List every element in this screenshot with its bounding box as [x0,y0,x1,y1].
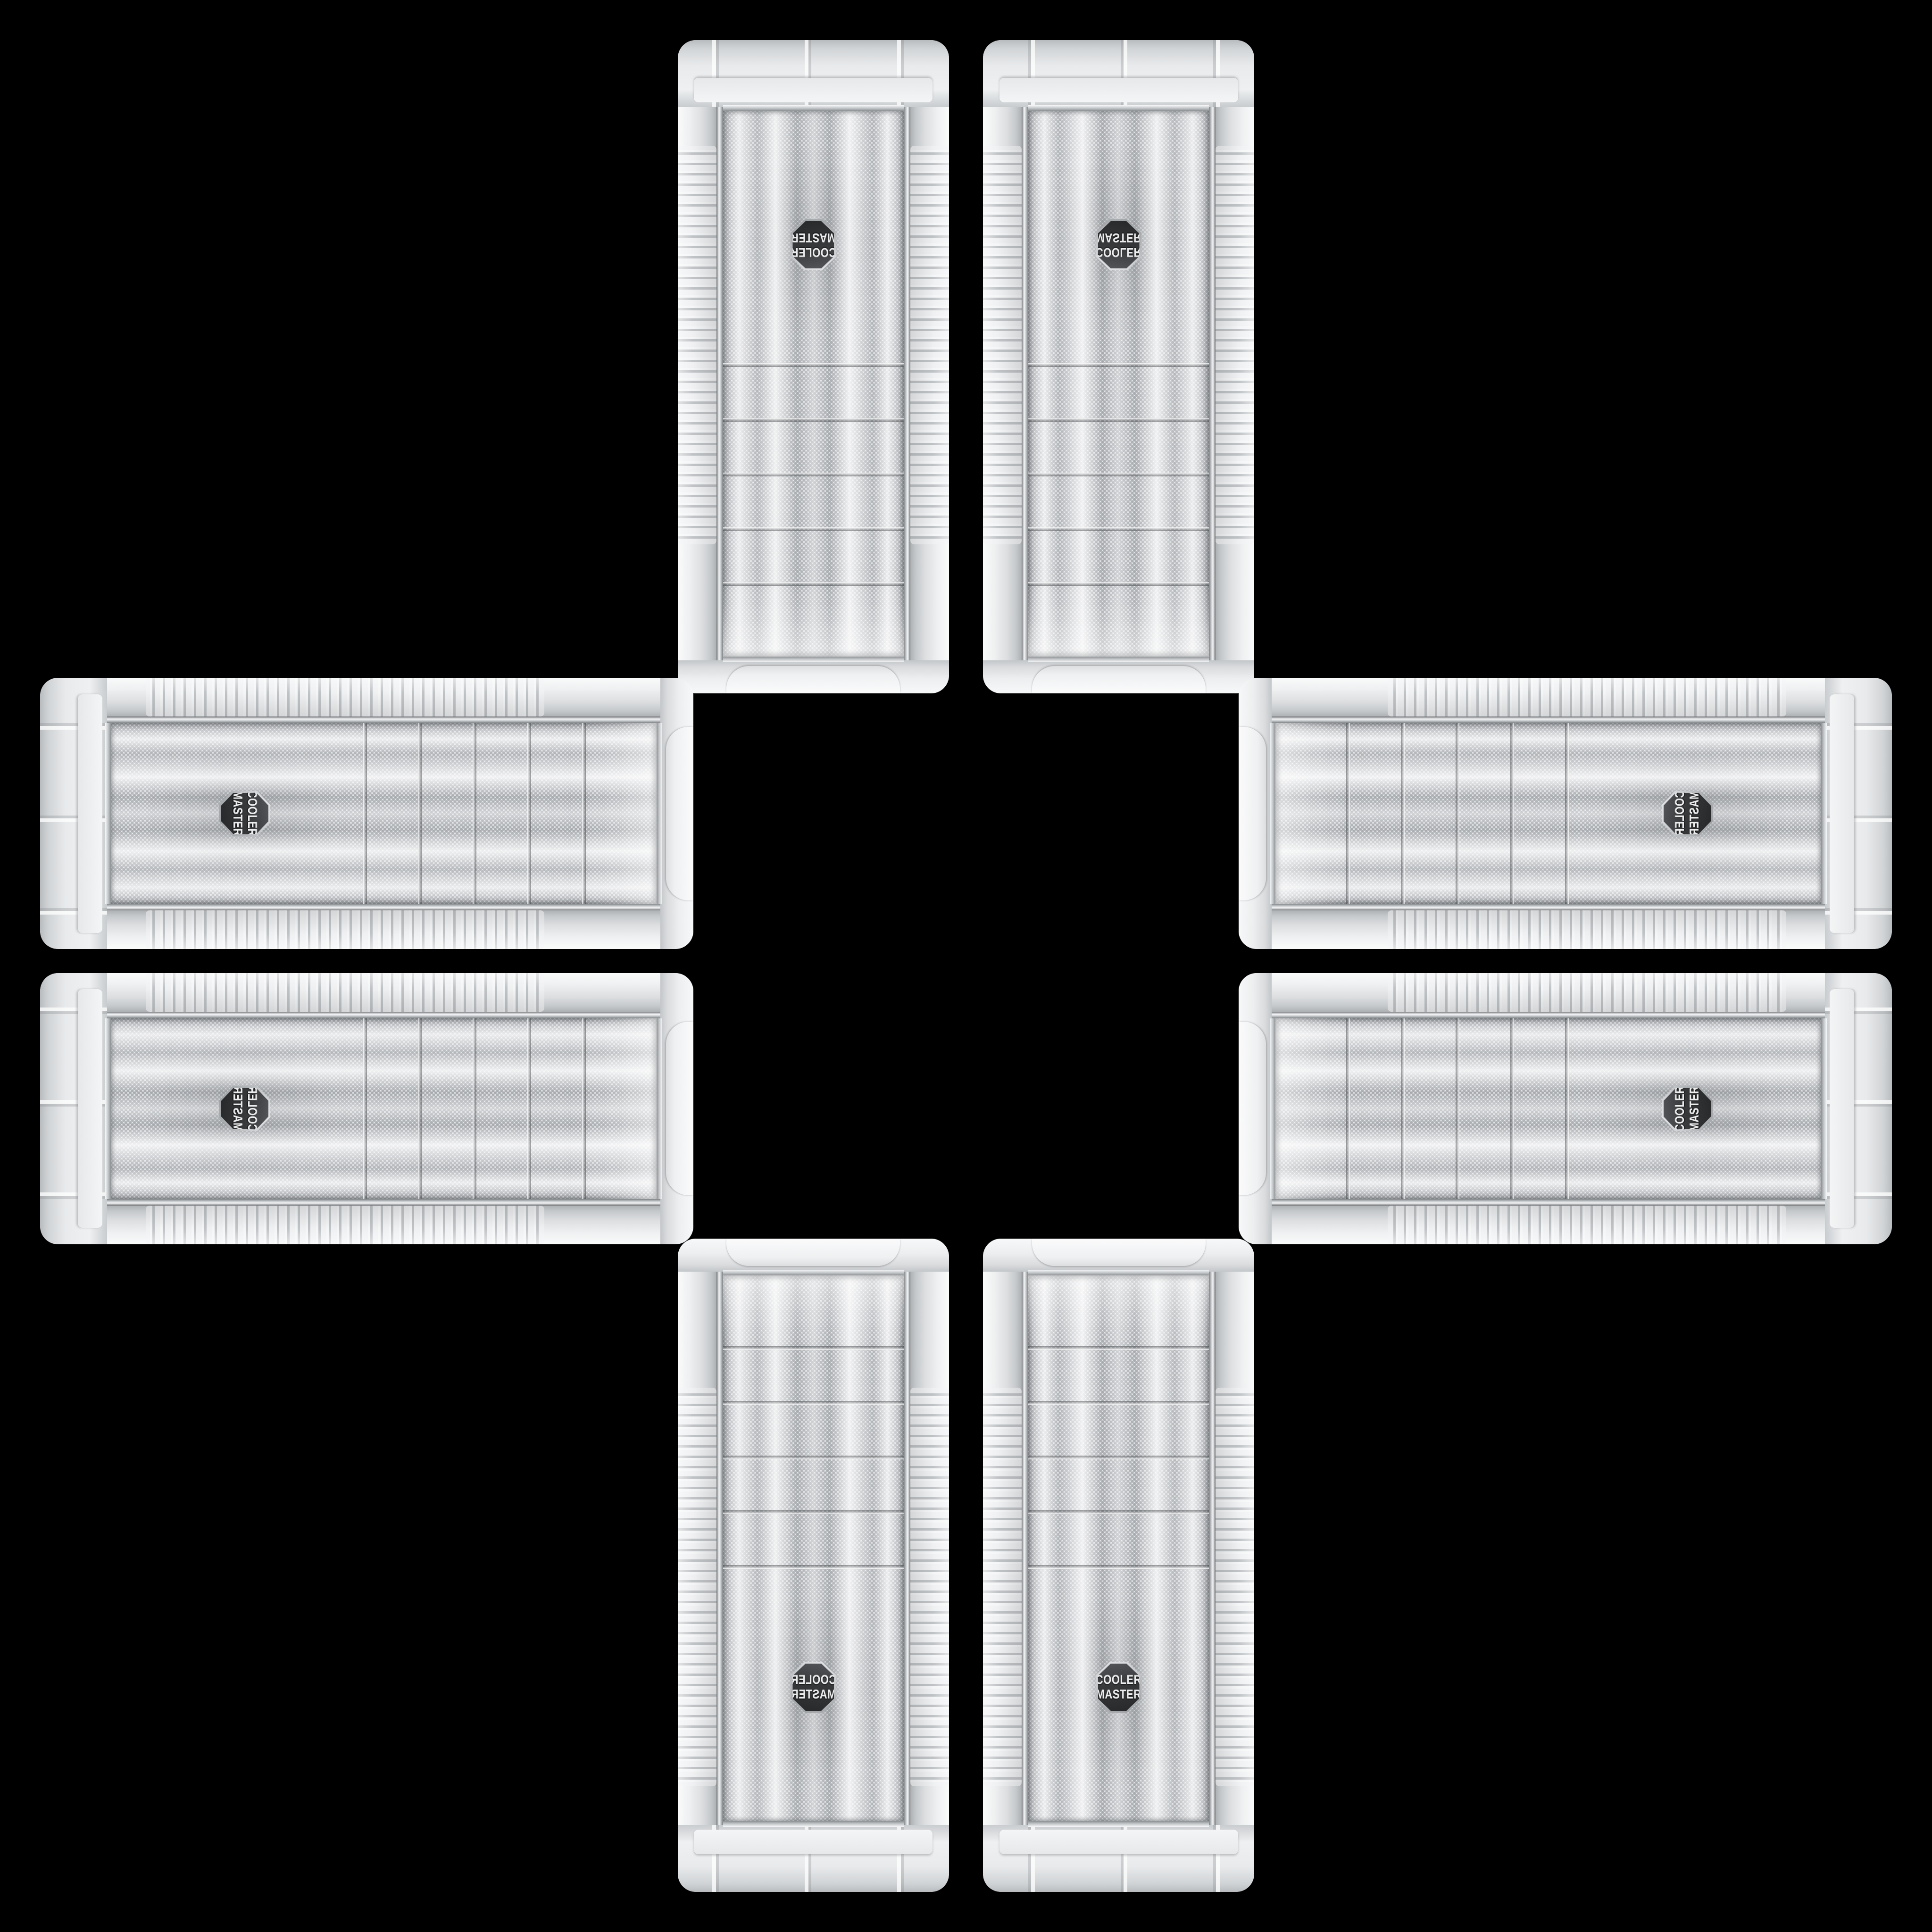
grip-ribs-left [1388,1206,1786,1244]
case-end-cap-base-side [678,40,949,107]
case-end-cap-base-side [1825,973,1892,1244]
chrome-trim-left [1270,1199,1827,1206]
cooler-master-badge-face: COOLER MASTER [1098,1664,1140,1711]
bay-cover-groove [418,723,422,904]
mesh-panel: COOLER MASTER [723,1275,904,1821]
bay-cover-groove [723,473,904,476]
bay-cover-groove [1565,723,1569,904]
cooler-master-badge: COOLER MASTER [219,1086,270,1132]
cooler-master-badge-face: COOLER MASTER [1098,221,1140,268]
case-front-bottom-right: COOLER MASTER [983,1239,1254,1892]
grip-ribs-left [910,146,949,544]
chrome-trim-bottom [723,1821,904,1827]
badge-text-line2: MASTER [1096,1688,1141,1701]
grip-ribs-right [678,146,716,544]
bay-cover-groove [1346,723,1350,904]
cooler-master-badge-face: COOLER MASTER [221,793,268,834]
bay-cover-groove [1401,723,1405,904]
badge-text-line1: COOLER [791,245,836,259]
mesh-panel: COOLER MASTER [111,1018,657,1199]
bay-cover-groove [1028,1565,1209,1569]
bay-cover-groove [418,1018,422,1199]
case-front-bottom-left: COOLER MASTER [678,1239,949,1892]
badge-text-line2: MASTER [1096,231,1141,244]
chrome-trim-left [105,1199,662,1206]
case-side-bezel-right [105,973,662,1012]
mesh-panel: COOLER MASTER [1275,1018,1821,1199]
case-front-left-bottom: COOLER MASTER [40,973,693,1244]
case-end-cap-base-side [1825,678,1892,949]
bay-cover-groove [723,1456,904,1459]
badge-text-line2: MASTER [1688,791,1701,836]
bay-cover-groove [723,418,904,422]
case-side-bezel-left [983,1270,1022,1827]
case-side-bezel-left [105,1206,662,1244]
mesh-hood [1028,1275,1209,1345]
grip-ribs-left [983,1388,1022,1786]
bay-cover-groove [1028,1456,1209,1459]
bay-cover-groove [1510,1018,1514,1199]
grip-ribs-left [910,1388,949,1786]
mesh-hood [723,1275,904,1345]
case-side-bezel-left [910,1270,949,1827]
bay-cover-groove [723,1565,904,1569]
cooler-master-badge-face: COOLER MASTER [221,1088,268,1130]
mesh-hood [1275,723,1345,904]
bay-cover-groove [1401,1018,1405,1199]
case-side-bezel-right [1216,105,1254,662]
case-end-cap-base-side [983,1825,1254,1892]
cooler-master-badge-face: COOLER MASTER [1664,793,1711,834]
grip-ribs-right [146,910,544,949]
bay-cover-groove [1028,363,1209,367]
bay-cover-groove [1510,723,1514,904]
mesh-panel: COOLER MASTER [723,111,904,657]
bay-cover-groove [1028,1510,1209,1514]
bay-cover-groove [1028,418,1209,422]
chrome-trim-top [723,1270,904,1275]
grip-ribs-right [678,1388,716,1786]
chrome-trim-right [1209,105,1216,662]
chrome-trim-top [1028,657,1209,662]
chrome-trim-bottom [1821,1018,1827,1199]
bay-cover-groove [582,1018,586,1199]
bay-cover-groove [723,1401,904,1405]
cooler-master-badge: COOLER MASTER [1096,1662,1141,1713]
chrome-trim-left [1022,105,1028,662]
case-end-cap-base-side [983,40,1254,107]
case-end-cap-bay-side [983,660,1254,693]
grip-ribs-left [1388,678,1786,716]
badge-text-line2: MASTER [791,1688,836,1701]
grip-ribs-right [146,973,544,1012]
mesh-hood [1028,587,1209,657]
badge-text-line1: COOLER [245,1086,259,1132]
case-end-cap-bay-side [660,678,693,949]
chrome-trim-left [1022,1270,1028,1827]
case-side-bezel-right [1270,910,1827,949]
cooler-master-badge: COOLER MASTER [219,791,270,836]
bay-cover-groove [1028,1401,1209,1405]
bay-cover-groove [363,723,367,904]
case-end-cap-bay-side [1239,973,1272,1244]
case-side-bezel-right [105,910,662,949]
bay-cover-groove [1028,1346,1209,1350]
chrome-trim-right [716,1270,723,1827]
case-side-bezel-left [1270,1206,1827,1244]
chrome-trim-right [1270,904,1827,910]
chrome-trim-left [105,716,662,723]
mesh-hood [723,587,904,657]
chrome-trim-bottom [723,105,904,111]
case-end-cap-bay-side [660,973,693,1244]
case-front-top-left: COOLER MASTER [678,40,949,693]
case-end-cap-base-side [678,1825,949,1892]
case-side-bezel-left [1270,678,1827,716]
bay-cover-groove [1346,1018,1350,1199]
case-front-right-top: COOLER MASTER [1239,678,1892,949]
mesh-hood [1275,1018,1345,1199]
cooler-master-badge-face: COOLER MASTER [793,1664,834,1711]
case-end-cap-bay-side [678,1239,949,1272]
case-side-bezel-left [105,678,662,716]
mesh-panel: COOLER MASTER [1028,1275,1209,1821]
case-side-bezel-left [910,105,949,662]
bay-cover-groove [527,1018,531,1199]
bay-cover-groove [363,1018,367,1199]
cooler-master-badge: COOLER MASTER [1662,1086,1713,1132]
badge-text-line1: COOLER [1096,245,1141,259]
grip-ribs-left [983,146,1022,544]
grip-ribs-right [1388,910,1786,949]
bay-cover-groove [723,527,904,531]
mesh-panel: COOLER MASTER [1028,111,1209,657]
bay-cover-groove [723,582,904,586]
case-side-bezel-right [1216,1270,1254,1827]
mesh-panel: COOLER MASTER [1275,723,1821,904]
bay-cover-groove [1028,582,1209,586]
case-front-top-right: COOLER MASTER [983,40,1254,693]
bay-cover-groove [527,723,531,904]
chrome-trim-top [1028,1270,1209,1275]
bay-cover-groove [582,723,586,904]
grip-ribs-left [146,678,544,716]
case-end-cap-bay-side [1239,678,1272,949]
case-side-bezel-right [678,105,716,662]
bay-cover-groove [723,1510,904,1514]
chrome-trim-bottom [1821,723,1827,904]
cooler-master-badge: COOLER MASTER [1096,219,1141,270]
mesh-hood [587,723,657,904]
bay-cover-groove [1565,1018,1569,1199]
chrome-trim-top [1270,1018,1275,1199]
chrome-trim-bottom [1028,105,1209,111]
chrome-trim-right [105,904,662,910]
chrome-trim-bottom [1028,1821,1209,1827]
grip-ribs-left [146,1206,544,1244]
bay-cover-groove [1028,527,1209,531]
chrome-trim-right [1270,1012,1827,1018]
case-end-cap-base-side [40,678,107,949]
chrome-trim-top [657,1018,662,1199]
chrome-trim-bottom [105,723,111,904]
mesh-hood [587,1018,657,1199]
grip-ribs-right [1216,146,1254,544]
badge-text-line2: MASTER [1688,1086,1701,1132]
bay-cover-groove [473,1018,476,1199]
chrome-trim-top [657,723,662,904]
bay-cover-groove [1456,1018,1459,1199]
cooler-master-badge-face: COOLER MASTER [1664,1088,1711,1130]
cooler-master-badge: COOLER MASTER [1662,791,1713,836]
badge-text-line2: MASTER [791,231,836,244]
chrome-trim-right [1209,1270,1216,1827]
bay-cover-groove [1028,473,1209,476]
chrome-trim-right [716,105,723,662]
chrome-trim-top [723,657,904,662]
grip-ribs-right [1216,1388,1254,1786]
badge-text-line1: COOLER [245,791,259,836]
badge-text-line2: MASTER [231,791,244,836]
chrome-trim-right [105,1012,662,1018]
badge-text-line1: COOLER [1673,1086,1687,1132]
badge-text-line1: COOLER [791,1673,836,1687]
badge-text-line1: COOLER [1673,791,1687,836]
badge-text-line1: COOLER [1096,1673,1141,1687]
chrome-trim-left [1270,716,1827,723]
chrome-trim-left [904,1270,910,1827]
mesh-panel: COOLER MASTER [111,723,657,904]
bay-cover-groove [723,1346,904,1350]
collage-canvas: COOLER MASTER [0,0,1932,1932]
case-side-bezel-right [1270,973,1827,1012]
case-end-cap-base-side [40,973,107,1244]
bay-cover-groove [473,723,476,904]
case-side-bezel-right [678,1270,716,1827]
cooler-master-badge: COOLER MASTER [791,219,836,270]
cooler-master-badge-face: COOLER MASTER [793,221,834,268]
badge-text-line2: MASTER [231,1086,244,1132]
case-front-right-bottom: COOLER MASTER [1239,973,1892,1244]
bay-cover-groove [1456,723,1459,904]
chrome-trim-bottom [105,1018,111,1199]
chrome-trim-left [904,105,910,662]
case-side-bezel-left [983,105,1022,662]
case-end-cap-bay-side [983,1239,1254,1272]
case-end-cap-bay-side [678,660,949,693]
case-front-left-top: COOLER MASTER [40,678,693,949]
grip-ribs-right [1388,973,1786,1012]
cooler-master-badge: COOLER MASTER [791,1662,836,1713]
bay-cover-groove [723,363,904,367]
chrome-trim-top [1270,723,1275,904]
